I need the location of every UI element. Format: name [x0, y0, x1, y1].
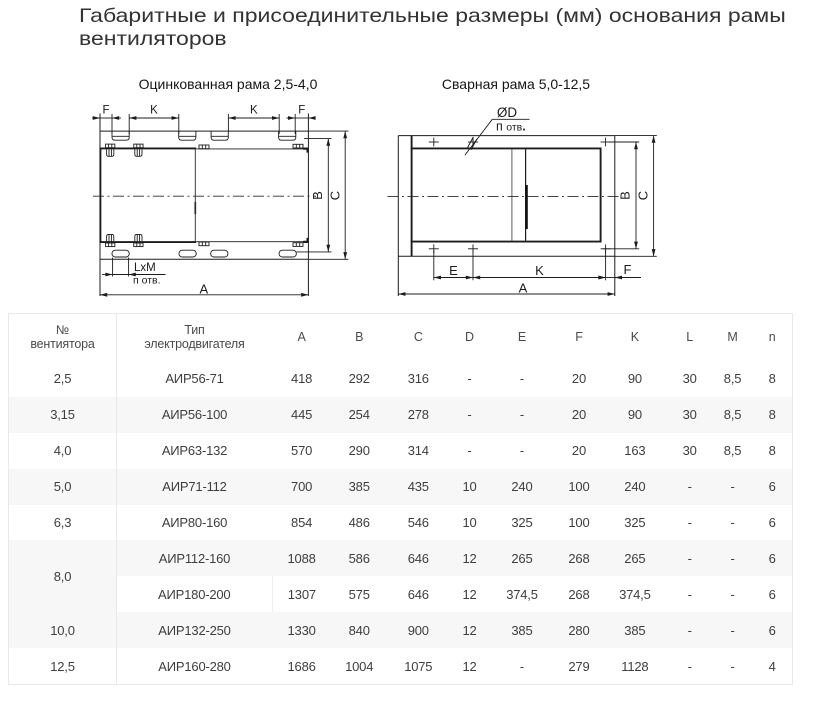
svg-text:K: K — [535, 263, 544, 278]
svg-text:K: K — [150, 105, 158, 117]
svg-text:A: A — [519, 281, 528, 296]
svg-text:E: E — [449, 263, 458, 278]
svg-text:F: F — [102, 105, 109, 117]
svg-text:B: B — [310, 191, 325, 200]
svg-text:F: F — [298, 105, 305, 117]
svg-text:C: C — [328, 191, 343, 200]
svg-text:K: K — [250, 105, 258, 117]
svg-text:C: C — [636, 191, 651, 200]
svg-text:F: F — [624, 262, 632, 277]
svg-text:ØD: ØD — [497, 105, 518, 120]
svg-text:п отв.: п отв. — [496, 120, 526, 134]
svg-text:B: B — [618, 191, 633, 200]
svg-text:п отв.: п отв. — [133, 275, 161, 287]
svg-text:A: A — [199, 281, 208, 296]
svg-text:LxM: LxM — [134, 262, 156, 274]
